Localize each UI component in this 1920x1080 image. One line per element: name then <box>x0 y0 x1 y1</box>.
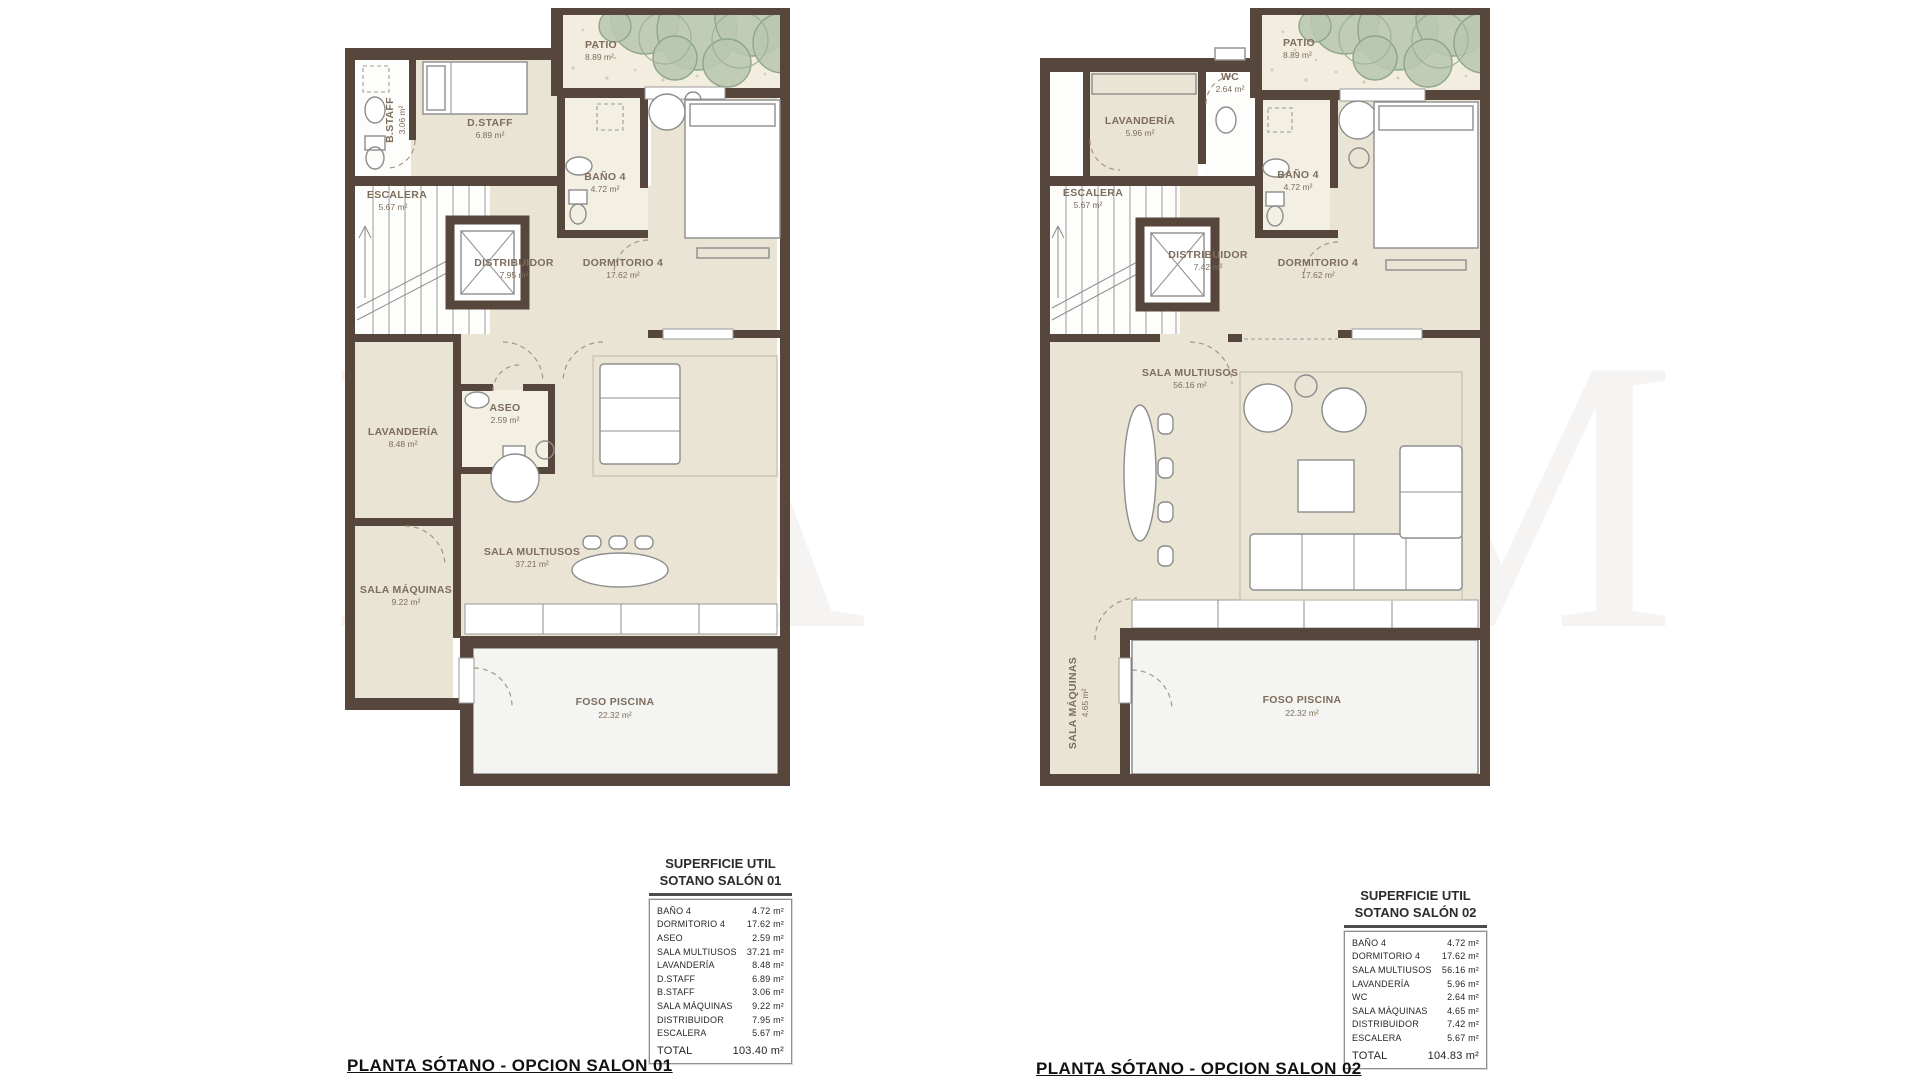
dormitorio-window <box>1352 329 1422 339</box>
dormitorio-window <box>663 329 733 339</box>
pool-basin <box>1132 640 1478 774</box>
room-area-wc: 2.64 m² <box>1216 84 1245 94</box>
legend-row: SALA MULTIUSOS37.21 m² <box>657 946 784 960</box>
legend-room-value: 5.67 m² <box>752 1027 784 1041</box>
floorplan-salon-02: PATIO 8.89 m² LAVANDERÍA 5.96 m² WC 2.64… <box>1040 8 1490 786</box>
legend-title-line2: SOTANO SALÓN 02 <box>1344 905 1487 922</box>
legend-title: SUPERFICIE UTIL SOTANO SALÓN 02 <box>1344 888 1487 922</box>
room-label-wc: WC <box>1221 71 1239 83</box>
toilet-bano4 <box>1266 192 1284 206</box>
legend-row: ESCALERA5.67 m² <box>1352 1032 1479 1046</box>
plan-title-salon-02: PLANTA SÓTANO - OPCION SALON 02 <box>1036 1059 1362 1079</box>
legend-room-label: LAVANDERÍA <box>657 959 715 973</box>
legend-title-line1: SUPERFICIE UTIL <box>1344 888 1487 905</box>
legend-room-value: 9.22 m² <box>752 1000 784 1014</box>
legend-row: SALA MÁQUINAS9.22 m² <box>657 1000 784 1014</box>
bed-dormitorio4 <box>685 100 780 238</box>
room-area-bstaff: 3.06 m² <box>397 105 407 134</box>
legend-room-label: SALA MÁQUINAS <box>657 1000 733 1014</box>
room-area-salamultiusos: 37.21 m² <box>515 559 549 569</box>
legend-room-label: ESCALERA <box>657 1027 707 1041</box>
legend-room-value: 4.72 m² <box>752 905 784 919</box>
legend-salon-01: SUPERFICIE UTIL SOTANO SALÓN 01 BAÑO 44.… <box>649 856 792 1064</box>
legend-title: SUPERFICIE UTIL SOTANO SALÓN 01 <box>649 856 792 890</box>
room-label-fosopiscina: FOSO PISCINA <box>576 696 655 708</box>
room-label-dormitorio4: DORMITORIO 4 <box>583 257 663 269</box>
wc-fixture <box>1215 48 1245 60</box>
armchair <box>491 454 539 502</box>
room-area-dstaff: 6.89 m² <box>476 130 505 140</box>
room-label-dormitorio4: DORMITORIO 4 <box>1278 257 1358 269</box>
legend-total-row: TOTAL104.83 m² <box>1352 1046 1479 1064</box>
legend-total-value: 104.83 m² <box>1428 1048 1479 1064</box>
store-floor <box>1050 72 1083 176</box>
room-area-dormitorio4: 17.62 m² <box>606 270 640 280</box>
room-area-lavanderia: 8.48 m² <box>389 439 418 449</box>
room-area-salamultiusos: 56.16 m² <box>1173 380 1207 390</box>
legend-row: D.STAFF6.89 m² <box>657 973 784 987</box>
legend-row: BAÑO 44.72 m² <box>1352 937 1479 951</box>
legend-row: LAVANDERÍA8.48 m² <box>657 959 784 973</box>
legend-row: SALA MULTIUSOS56.16 m² <box>1352 964 1479 978</box>
legend-room-value: 5.96 m² <box>1447 978 1479 992</box>
legend-title-line2: SOTANO SALÓN 01 <box>649 873 792 890</box>
legend-total-value: 103.40 m² <box>733 1043 784 1059</box>
legend-room-label: SALA MULTIUSOS <box>1352 964 1432 978</box>
room-area-aseo: 2.59 m² <box>491 415 520 425</box>
room-label-distribuidor: DISTRIBUIDOR <box>474 257 554 269</box>
legend-row: WC2.64 m² <box>1352 991 1479 1005</box>
room-area-bano4: 4.72 m² <box>591 184 620 194</box>
sink-aseo <box>465 392 489 408</box>
legend-title-line1: SUPERFICIE UTIL <box>649 856 792 873</box>
room-area-distribuidor: 7.42 m² <box>1194 262 1223 272</box>
toilet-wc <box>1216 107 1236 133</box>
room-area-fosopiscina: 22.32 m² <box>1285 708 1319 718</box>
legend-room-label: SALA MÁQUINAS <box>1352 1005 1428 1019</box>
room-label-lavanderia: LAVANDERÍA <box>368 425 438 438</box>
room-area-lavanderia: 5.96 m² <box>1126 128 1155 138</box>
legend-room-value: 2.59 m² <box>752 932 784 946</box>
chair <box>1158 546 1173 566</box>
sofa <box>600 364 680 464</box>
toilet-bstaff <box>365 136 385 150</box>
room-label-salamultiusos: SALA MULTIUSOS <box>484 546 580 558</box>
legend-room-label: DORMITORIO 4 <box>1352 950 1420 964</box>
legend-room-value: 17.62 m² <box>1442 950 1479 964</box>
legend-room-value: 7.42 m² <box>1447 1018 1479 1032</box>
floorplan-sheet: M A A M <box>0 0 1920 1080</box>
legend-row: SALA MÁQUINAS4.65 m² <box>1352 1005 1479 1019</box>
chair <box>1158 502 1173 522</box>
legend-box: BAÑO 44.72 m² DORMITORIO 417.62 m² SALA … <box>1344 931 1487 1069</box>
room-label-escalera: ESCALERA <box>1063 187 1123 199</box>
legend-rule <box>1344 925 1487 928</box>
room-label-bano4: BAÑO 4 <box>1277 168 1318 181</box>
legend-room-value: 6.89 m² <box>752 973 784 987</box>
round-armchair <box>1322 388 1366 432</box>
room-area-escalera: 5.67 m² <box>1074 200 1103 210</box>
legend-row: B.STAFF3.06 m² <box>657 986 784 1000</box>
round-armchair <box>1244 384 1292 432</box>
legend-room-label: ASEO <box>657 932 683 946</box>
plan-title-salon-01: PLANTA SÓTANO - OPCION SALON 01 <box>347 1056 673 1076</box>
legend-row: DISTRIBUIDOR7.42 m² <box>1352 1018 1479 1032</box>
room-label-bano4: BAÑO 4 <box>584 170 625 183</box>
pool-door-opening <box>1119 658 1131 703</box>
dining-table <box>572 553 668 587</box>
legend-row: DISTRIBUIDOR7.95 m² <box>657 1014 784 1028</box>
room-label-salamultiusos: SALA MULTIUSOS <box>1142 367 1238 379</box>
room-label-patio: PATIO <box>1283 37 1315 49</box>
legend-room-value: 5.67 m² <box>1447 1032 1479 1046</box>
legend-room-label: WC <box>1352 991 1367 1005</box>
legend-room-value: 56.16 m² <box>1442 964 1479 978</box>
toilet-bano4 <box>569 190 587 204</box>
room-salamaquinas-floor <box>345 526 453 698</box>
chair <box>1158 414 1173 434</box>
legend-room-label: DORMITORIO 4 <box>657 918 725 932</box>
legend-room-value: 3.06 m² <box>752 986 784 1000</box>
room-label-salamaquinas: SALA MÁQUINAS <box>1066 657 1079 749</box>
legend-room-label: ESCALERA <box>1352 1032 1402 1046</box>
legend-box: BAÑO 44.72 m² DORMITORIO 417.62 m² ASEO2… <box>649 899 792 1064</box>
legend-room-label: DISTRIBUIDOR <box>657 1014 724 1028</box>
room-label-bstaff: B.STAFF <box>384 97 396 143</box>
floorplan-salon-01: PATIO 8.89 m² B.STAFF 3.06 m² D.STAFF 6.… <box>345 8 790 786</box>
chair <box>1158 458 1173 478</box>
room-label-salamaquinas: SALA MÁQUINAS <box>360 583 452 596</box>
room-area-fosopiscina: 22.32 m² <box>598 710 632 720</box>
room-area-patio: 8.89 m² <box>585 52 614 62</box>
patio-window <box>1340 89 1425 101</box>
pool-door-opening <box>459 658 474 703</box>
legend-total-row: TOTAL103.40 m² <box>657 1041 784 1059</box>
round-chair <box>649 94 685 130</box>
room-area-bano4: 4.72 m² <box>1284 182 1313 192</box>
bed-dormitorio4 <box>1374 102 1478 248</box>
legend-salon-02: SUPERFICIE UTIL SOTANO SALÓN 02 BAÑO 44.… <box>1344 888 1487 1069</box>
legend-room-value: 4.65 m² <box>1447 1005 1479 1019</box>
coffee-table <box>1298 460 1354 512</box>
room-label-escalera: ESCALERA <box>367 189 427 201</box>
legend-room-label: B.STAFF <box>657 986 695 1000</box>
room-area-dormitorio4: 17.62 m² <box>1301 270 1335 280</box>
room-area-distribuidor: 7.95 m² <box>500 270 529 280</box>
sofa-horizontal <box>1250 534 1462 590</box>
room-label-distribuidor: DISTRIBUIDOR <box>1168 249 1248 261</box>
legend-room-value: 7.95 m² <box>752 1014 784 1028</box>
room-label-aseo: ASEO <box>490 402 521 414</box>
legend-room-value: 17.62 m² <box>747 918 784 932</box>
legend-room-label: D.STAFF <box>657 973 695 987</box>
legend-room-value: 4.72 m² <box>1447 937 1479 951</box>
legend-rule <box>649 893 792 896</box>
legend-room-value: 37.21 m² <box>747 946 784 960</box>
window-strip <box>465 604 777 634</box>
legend-row: LAVANDERÍA5.96 m² <box>1352 978 1479 992</box>
legend-room-label: BAÑO 4 <box>657 905 691 919</box>
dining-table <box>1124 405 1156 541</box>
room-area-escalera: 5.67 m² <box>379 202 408 212</box>
legend-row: ASEO2.59 m² <box>657 932 784 946</box>
legend-room-label: BAÑO 4 <box>1352 937 1386 951</box>
room-label-dstaff: D.STAFF <box>467 117 513 129</box>
room-label-patio: PATIO <box>585 39 617 51</box>
floorplan-svg-salon-02: PATIO 8.89 m² LAVANDERÍA 5.96 m² WC 2.64… <box>1040 8 1490 786</box>
room-area-salamaquinas: 4.65 m² <box>1080 688 1090 717</box>
room-label-lavanderia: LAVANDERÍA <box>1105 114 1175 127</box>
chair <box>583 536 601 549</box>
room-area-patio: 8.89 m² <box>1283 50 1312 60</box>
legend-row: DORMITORIO 417.62 m² <box>657 918 784 932</box>
legend-row: ESCALERA5.67 m² <box>657 1027 784 1041</box>
legend-room-label: SALA MULTIUSOS <box>657 946 737 960</box>
room-label-fosopiscina: FOSO PISCINA <box>1263 694 1342 706</box>
legend-row: DORMITORIO 417.62 m² <box>1352 950 1479 964</box>
chair <box>635 536 653 549</box>
sink-bstaff <box>365 97 385 123</box>
legend-room-label: LAVANDERÍA <box>1352 978 1410 992</box>
round-chair <box>1339 101 1377 139</box>
floorplan-svg-salon-01: PATIO 8.89 m² B.STAFF 3.06 m² D.STAFF 6.… <box>345 8 790 786</box>
bed-dstaff <box>423 62 527 114</box>
legend-room-value: 2.64 m² <box>1447 991 1479 1005</box>
legend-room-label: DISTRIBUIDOR <box>1352 1018 1419 1032</box>
chair <box>609 536 627 549</box>
legend-row: BAÑO 44.72 m² <box>657 905 784 919</box>
legend-room-value: 8.48 m² <box>752 959 784 973</box>
room-area-salamaquinas: 9.22 m² <box>392 597 421 607</box>
window-strip <box>1132 600 1478 628</box>
